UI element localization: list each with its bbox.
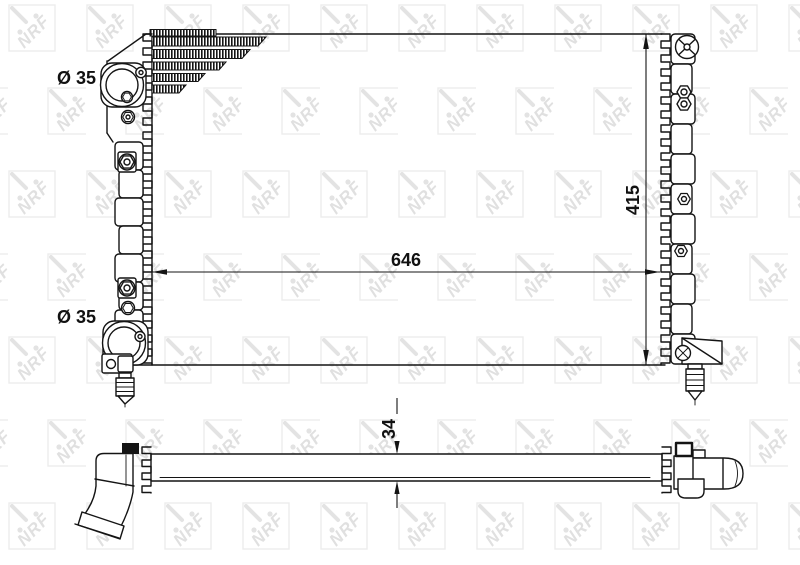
dim-label-bottom-port-diameter: Ø 35 [57, 307, 96, 327]
dim-label-top-port-diameter: Ø 35 [57, 68, 96, 88]
port-stub-left [122, 443, 139, 454]
flange-bolt [122, 111, 135, 124]
filler-cap [676, 36, 699, 59]
hex-nut [675, 246, 688, 257]
hex-nut [122, 302, 135, 315]
core-profile-bar [151, 454, 662, 481]
dim-label-core-thickness: 34 [379, 419, 399, 439]
flange-bolt [122, 92, 133, 103]
mounting-bolt [118, 152, 136, 172]
radiator-technical-drawing: NRF NRF [0, 0, 800, 565]
technical-drawing-page: NRF NRF [0, 0, 800, 565]
bottom-bracket [102, 354, 133, 373]
core-top-plate [150, 30, 216, 37]
dim-label-core-width: 646 [391, 250, 421, 270]
hex-nut [678, 194, 691, 205]
dim-label-core-height: 415 [623, 185, 643, 215]
mounting-bolt [118, 278, 136, 298]
